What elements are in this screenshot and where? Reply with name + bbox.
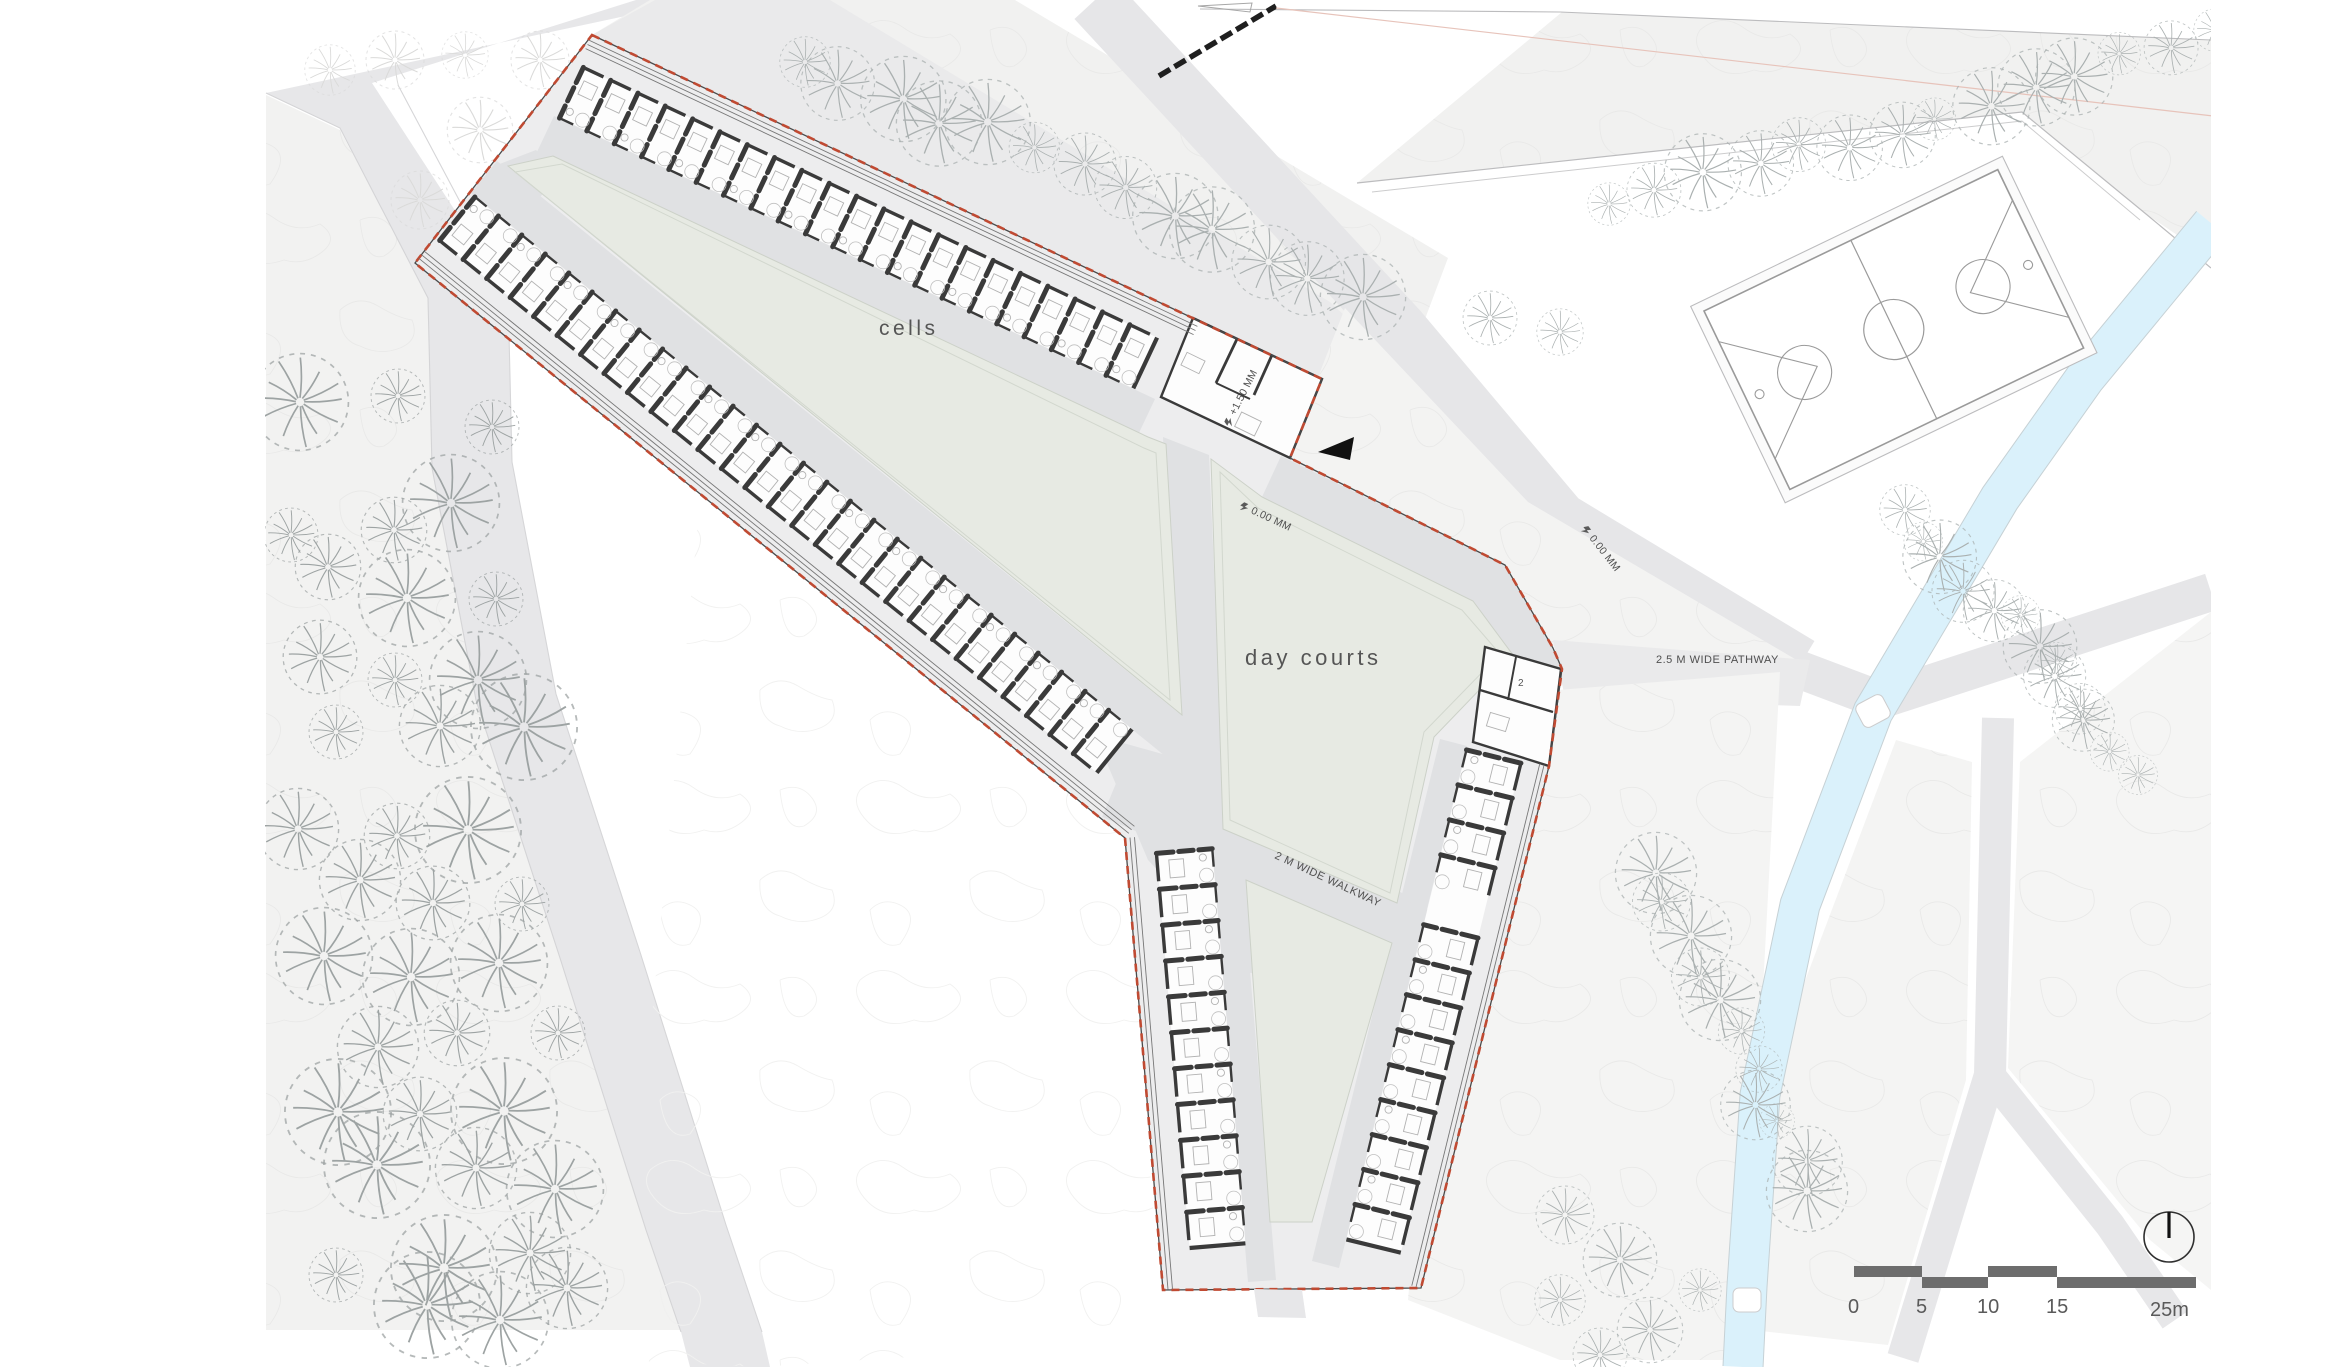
svg-text:2: 2 [1518,678,1524,689]
svg-text:2.5 M WIDE PATHWAY: 2.5 M WIDE PATHWAY [1656,654,1779,666]
svg-text:cells: cells [879,317,939,340]
svg-text:15: 15 [2046,1296,2068,1318]
svg-text:day courts: day courts [1245,645,1382,670]
svg-text:10: 10 [1977,1296,1999,1318]
svg-text:0: 0 [1848,1296,1859,1318]
svg-text:5: 5 [1916,1296,1927,1318]
svg-text:25m: 25m [2150,1299,2189,1321]
